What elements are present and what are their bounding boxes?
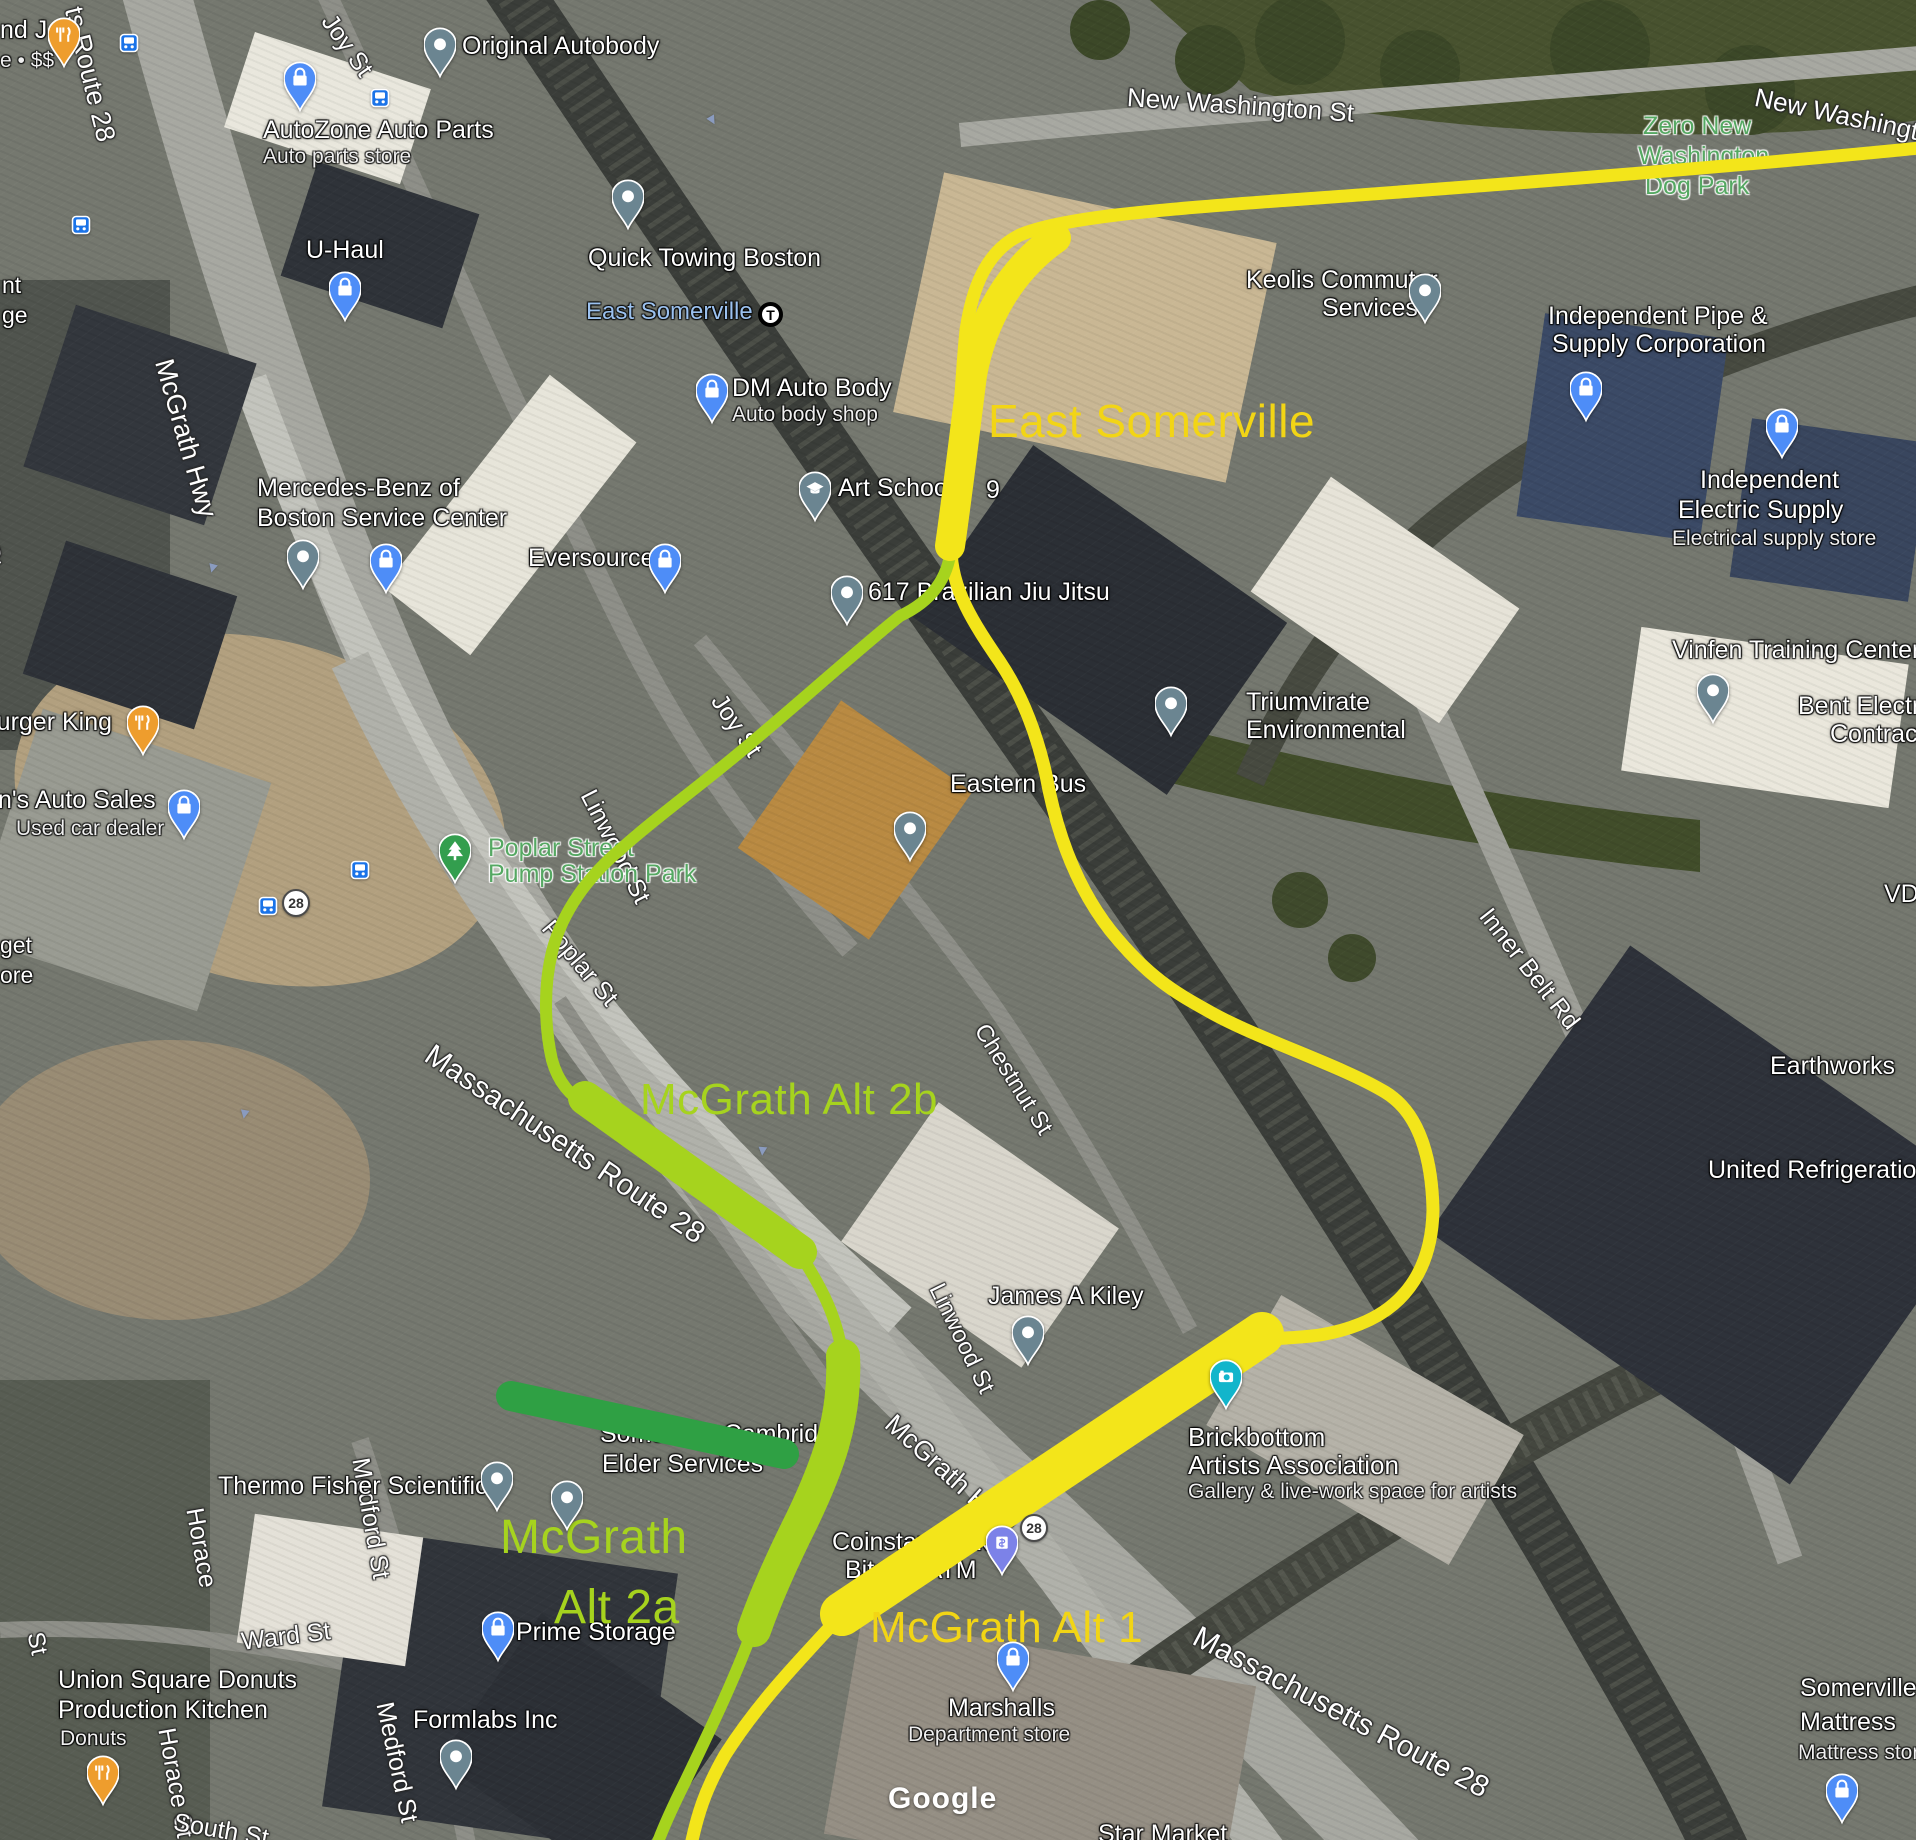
place-pin-triumvirate[interactable] bbox=[1155, 685, 1187, 740]
school-pin-art-school[interactable] bbox=[799, 470, 831, 525]
east-somerville-station-band bbox=[950, 238, 1056, 546]
store-pin-auto-sales[interactable] bbox=[168, 788, 200, 843]
elevated-mcgrath-band bbox=[511, 1396, 784, 1454]
place-pin-mercedes-service[interactable] bbox=[287, 538, 319, 593]
route-name-mcgrath-2: McGrath bbox=[500, 1514, 688, 1562]
route-name-mcgrath-alt-2b-1: McGrath Alt 2b bbox=[640, 1078, 938, 1122]
place-pin-formlabs[interactable] bbox=[440, 1738, 472, 1793]
store-pin-mercedes-benz[interactable] bbox=[370, 542, 402, 597]
store-pin-u-haul[interactable] bbox=[329, 270, 361, 325]
place-pin-keolis[interactable] bbox=[1409, 272, 1441, 327]
mcgrath-alt-1-band bbox=[842, 1334, 1262, 1614]
park-pin-poplar-street-pump-station[interactable] bbox=[439, 832, 471, 887]
route-name-east-somerville-0: East Somerville bbox=[988, 398, 1315, 444]
store-pin-somerville-mattress[interactable] bbox=[1826, 1772, 1858, 1827]
place-pin-eastern-bus[interactable] bbox=[894, 810, 926, 865]
store-pin-independent-pipe[interactable] bbox=[1570, 370, 1602, 425]
place-pin-thermo-fisher[interactable] bbox=[481, 1460, 513, 1515]
route-name-alt-2a-3: Alt 2a bbox=[554, 1584, 680, 1632]
bus-stop-icon-4[interactable] bbox=[258, 896, 278, 916]
place-pin-617-brazilian-jiu-jitsu[interactable] bbox=[831, 574, 863, 629]
traffic-arrow-icon-3: ▲ bbox=[754, 1142, 770, 1160]
bus-stop-icon-2[interactable] bbox=[370, 88, 390, 108]
restaurant-pin-union-square-donuts[interactable] bbox=[87, 1754, 119, 1809]
route-28-shield-1: 28 bbox=[1020, 1514, 1048, 1542]
bus-stop-icon-0[interactable] bbox=[119, 33, 139, 53]
satellite-map-canvas[interactable]: ts Route 28Joy StNew Washington StNew Wa… bbox=[0, 0, 1916, 1840]
place-pin-elder-services[interactable] bbox=[551, 1479, 583, 1534]
store-pin-autozone[interactable] bbox=[284, 60, 316, 115]
place-pin-quick-towing[interactable] bbox=[612, 178, 644, 233]
bus-stop-icon-3[interactable] bbox=[350, 860, 370, 880]
route-overlay bbox=[0, 0, 1916, 1840]
store-pin-marshalls[interactable] bbox=[997, 1640, 1029, 1695]
mbta-t-station-icon-0[interactable]: T bbox=[758, 302, 783, 327]
place-pin-original-autobody[interactable] bbox=[424, 26, 456, 81]
mcgrath-alt-2a-band bbox=[754, 1356, 843, 1630]
store-pin-independent-electric[interactable] bbox=[1766, 407, 1798, 462]
atm-pin-coinstar[interactable] bbox=[986, 1524, 1018, 1579]
place-pin-james-a-kiley[interactable] bbox=[1012, 1314, 1044, 1369]
route-28-shield-0: 28 bbox=[282, 889, 310, 917]
bus-stop-icon-1[interactable] bbox=[71, 215, 91, 235]
restaurant-pin-burger-king[interactable] bbox=[127, 704, 159, 759]
store-pin-dm-auto-body[interactable] bbox=[696, 372, 728, 427]
restaurant-pin-top-left[interactable] bbox=[48, 16, 80, 71]
google-watermark: Google bbox=[888, 1784, 997, 1814]
place-pin-vinfen[interactable] bbox=[1697, 672, 1729, 727]
store-pin-eversource[interactable] bbox=[649, 542, 681, 597]
traffic-arrow-icon-1: ▲ bbox=[236, 1105, 254, 1124]
photo-pin-brickbottom[interactable] bbox=[1210, 1358, 1242, 1413]
store-pin-prime-storage[interactable] bbox=[482, 1610, 514, 1665]
